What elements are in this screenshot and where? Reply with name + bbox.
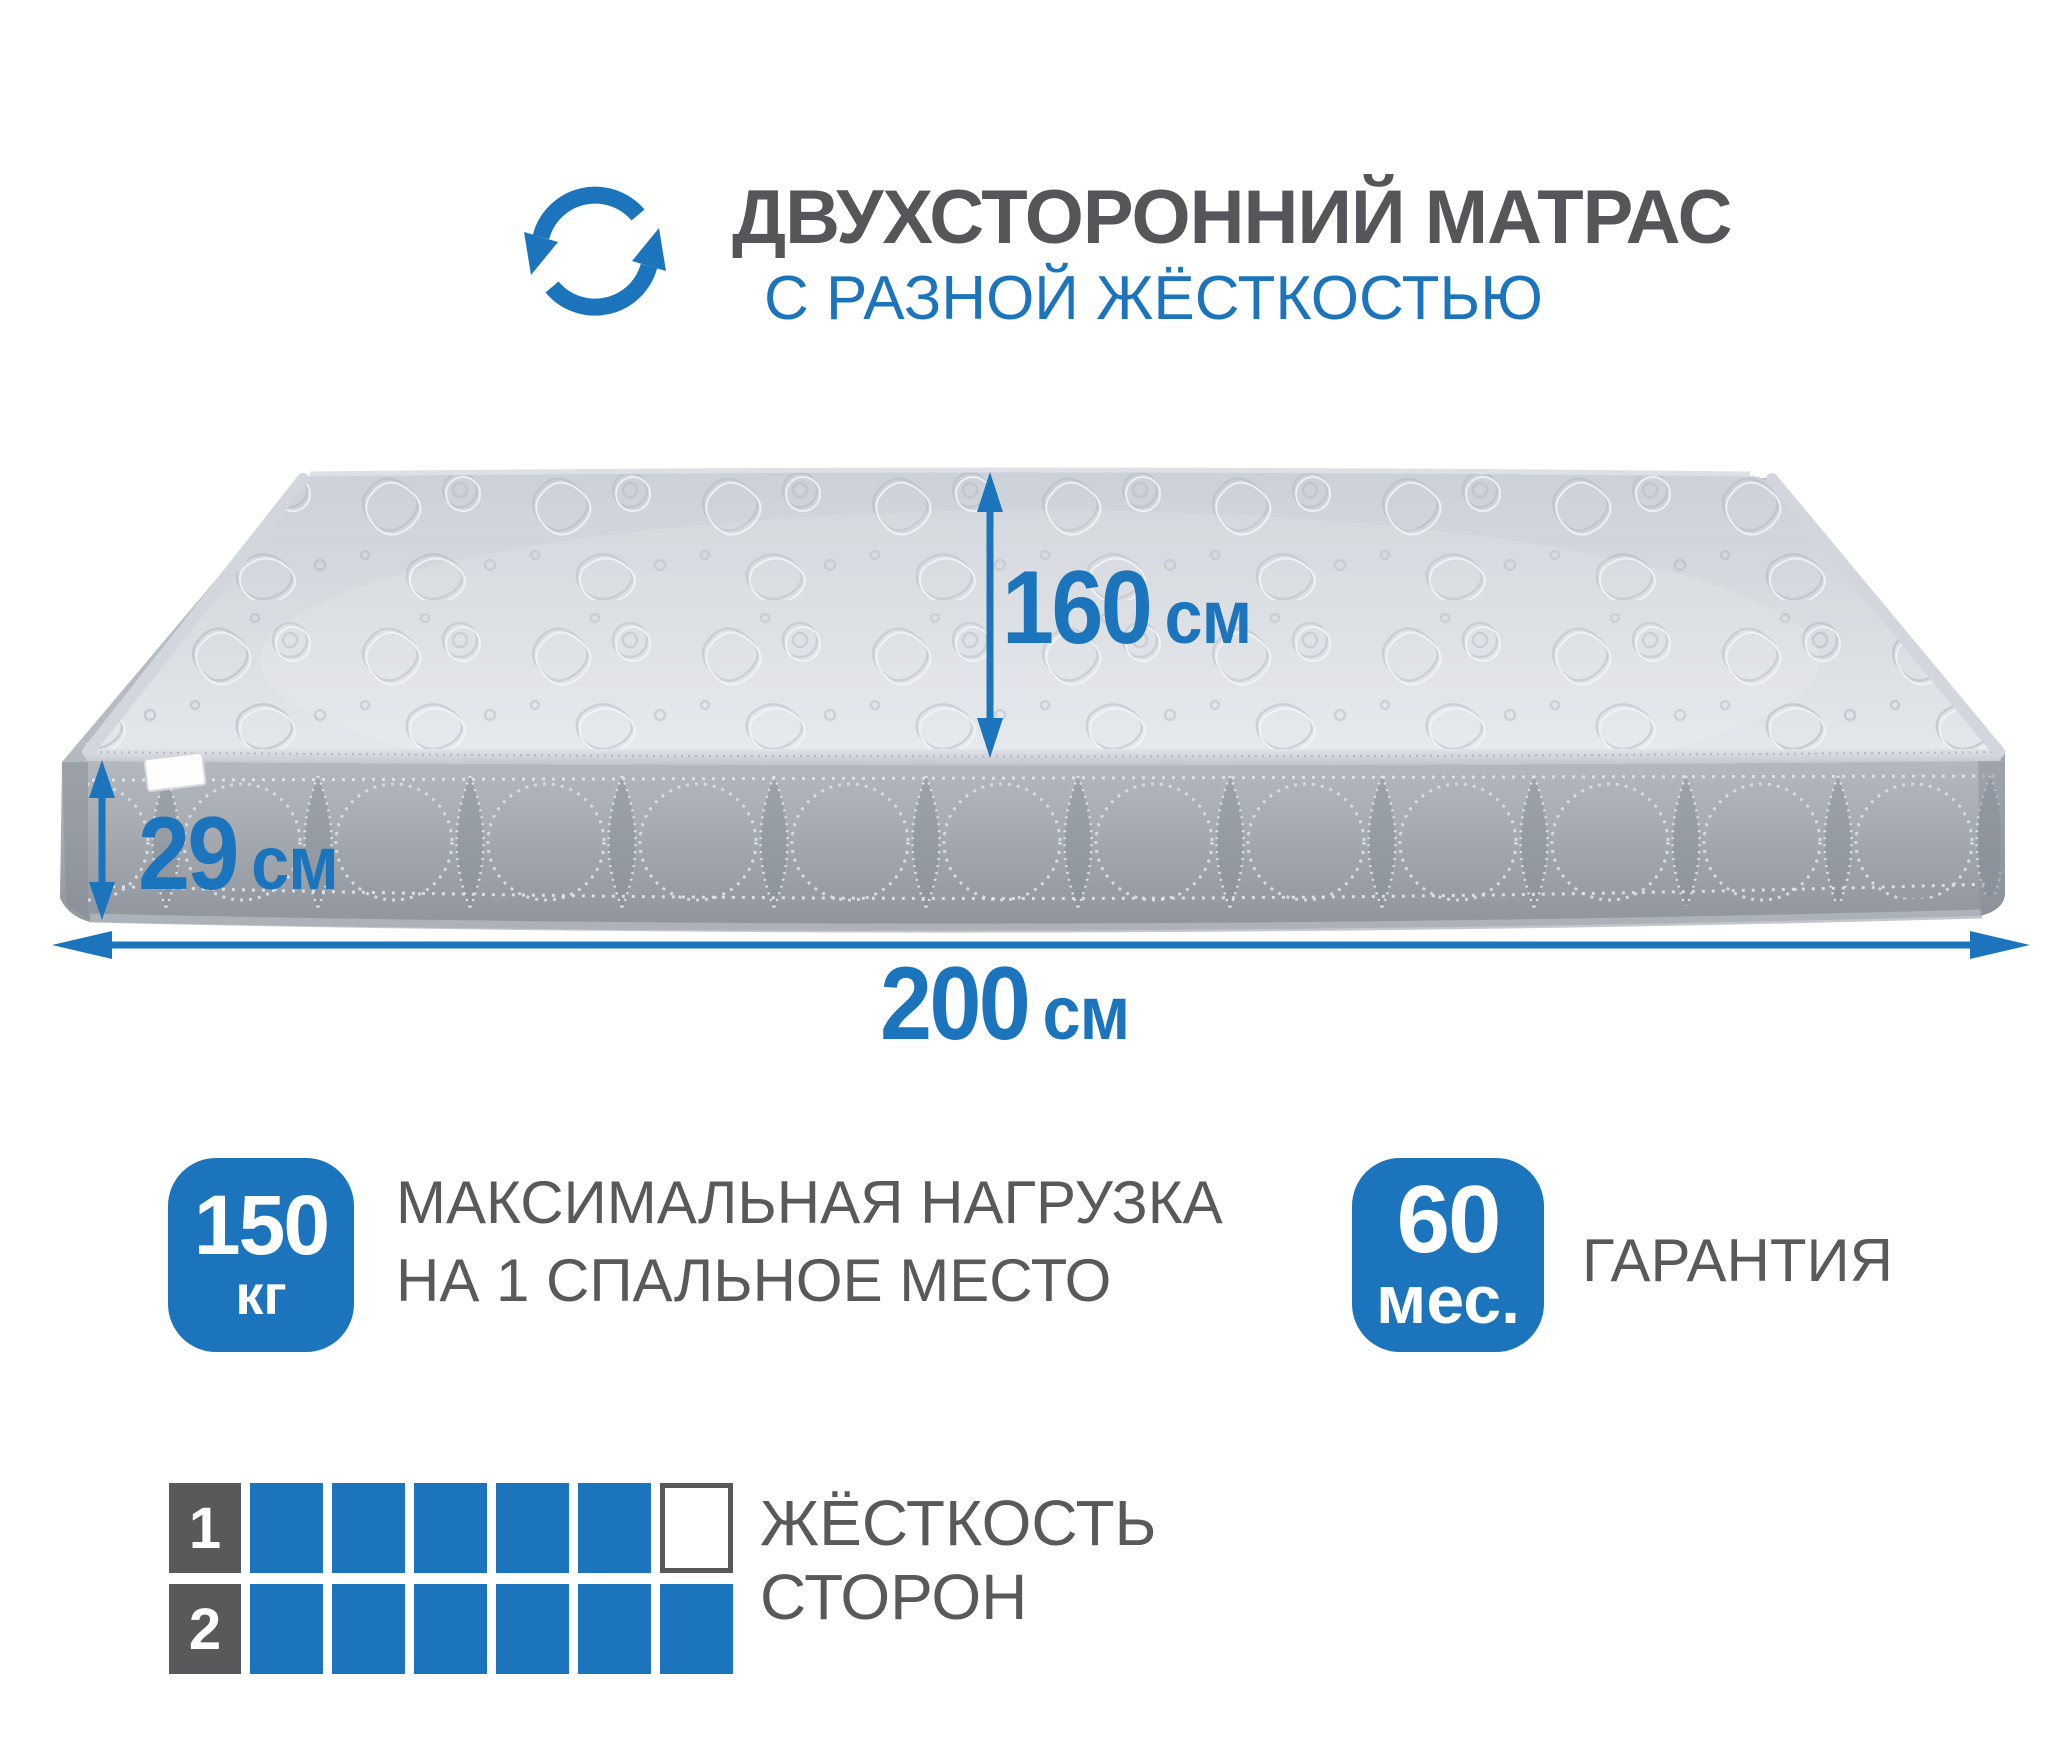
warranty-caption: ГАРАНТИЯ — [1582, 1222, 1893, 1300]
length-unit: см — [1042, 971, 1129, 1056]
max-load-caption: МАКСИМАЛЬНАЯ НАГРУЗКА НА 1 СПАЛЬНОЕ МЕСТ… — [396, 1164, 1223, 1320]
firmness-square-filled — [578, 1584, 651, 1674]
warranty-value: 60 — [1397, 1174, 1500, 1265]
max-load-value: 150 — [194, 1186, 328, 1266]
warranty-badge: 60 мес. — [1352, 1158, 1544, 1352]
firmness-square-filled — [496, 1483, 569, 1573]
firmness-caption-line1: ЖЁСТКОСТЬ — [760, 1486, 1157, 1560]
max-load-unit: кг — [235, 1266, 286, 1325]
firmness-square-filled — [660, 1584, 733, 1674]
width-unit: см — [1164, 575, 1251, 660]
firmness-square-filled — [414, 1483, 487, 1573]
firmness-square-filled — [332, 1584, 405, 1674]
firmness-square-filled — [250, 1483, 323, 1573]
mattress-tag — [144, 753, 205, 792]
firmness-row-index: 2 — [169, 1584, 241, 1674]
firmness-square-filled — [250, 1584, 323, 1674]
firmness-row-index: 1 — [169, 1483, 241, 1573]
mattress-front-quilting — [88, 758, 2001, 920]
height-unit: см — [251, 821, 338, 906]
max-load-badge: 150 кг — [168, 1158, 354, 1352]
height-dimension-label: 29см — [138, 802, 338, 906]
width-value: 160 — [1002, 550, 1150, 666]
width-dimension-label: 160см — [1002, 556, 1251, 660]
warranty-unit: мес. — [1376, 1265, 1520, 1336]
max-load-caption-line1: МАКСИМАЛЬНАЯ НАГРУЗКА — [396, 1164, 1223, 1242]
length-dimension-label: 200см — [880, 952, 1129, 1056]
firmness-row-side-1: 1 — [169, 1483, 733, 1573]
firmness-square-filled — [578, 1483, 651, 1573]
firmness-square-filled — [496, 1584, 569, 1674]
mattress-infographic: ДВУХСТОРОННИЙ МАТРАС С РАЗНОЙ ЖЁСТКОСТЬЮ — [0, 0, 2048, 1757]
height-value: 29 — [138, 796, 237, 912]
right-corner-shade — [1978, 752, 2005, 916]
height-arrow — [85, 758, 119, 922]
firmness-row-side-2: 2 — [169, 1584, 733, 1674]
firmness-square-filled — [414, 1584, 487, 1674]
max-load-caption-line2: НА 1 СПАЛЬНОЕ МЕСТО — [396, 1242, 1223, 1320]
length-value: 200 — [880, 946, 1028, 1062]
firmness-caption: ЖЁСТКОСТЬ СТОРОН — [760, 1486, 1157, 1634]
firmness-caption-line2: СТОРОН — [760, 1560, 1157, 1634]
firmness-square-filled — [332, 1483, 405, 1573]
firmness-square-empty — [660, 1483, 733, 1573]
